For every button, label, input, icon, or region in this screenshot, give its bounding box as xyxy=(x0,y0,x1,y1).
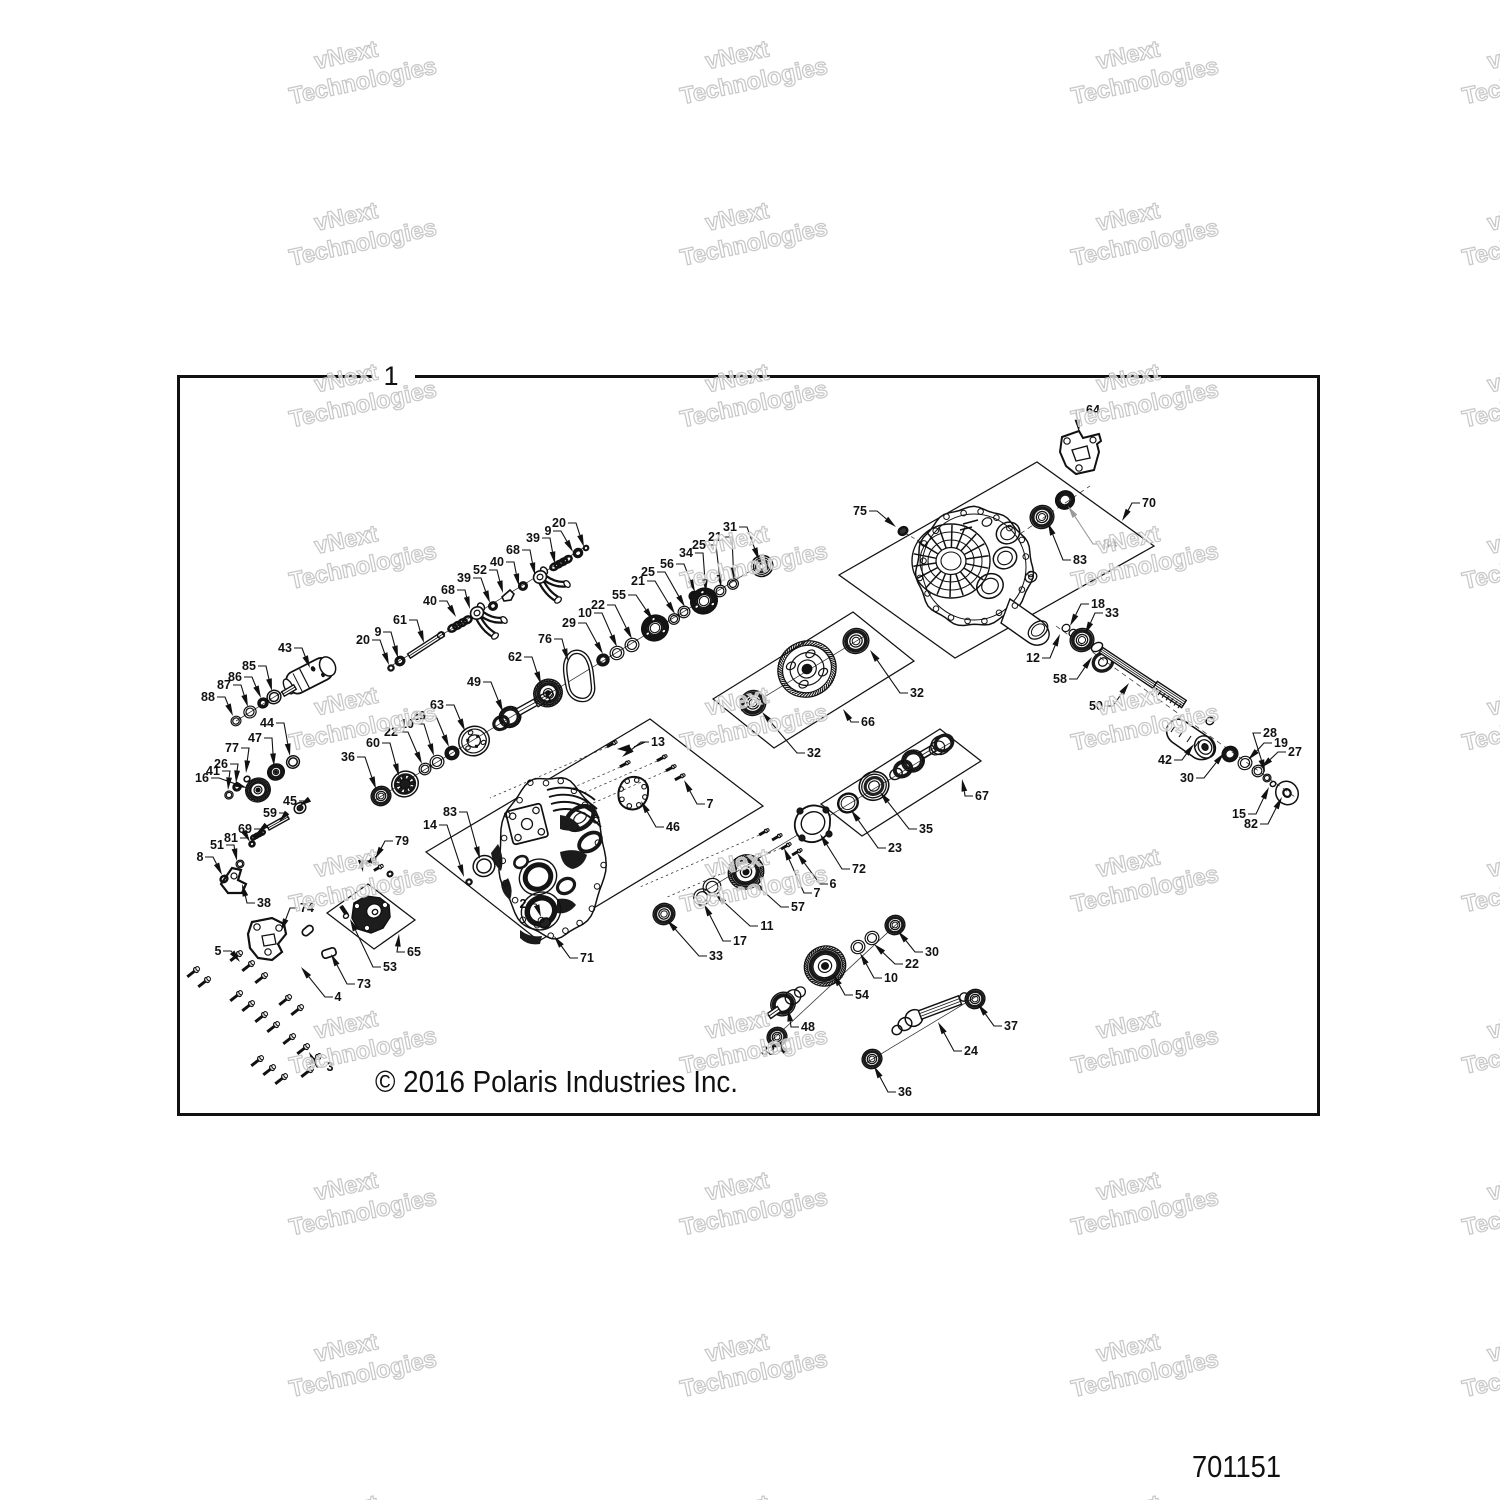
svg-text:71: 71 xyxy=(580,951,594,965)
svg-text:59: 59 xyxy=(263,806,277,820)
svg-text:33: 33 xyxy=(1105,606,1119,620)
svg-text:30: 30 xyxy=(925,945,939,959)
svg-text:68: 68 xyxy=(441,583,455,597)
svg-text:13: 13 xyxy=(651,735,665,749)
svg-text:61: 61 xyxy=(393,613,407,627)
svg-text:16: 16 xyxy=(195,771,209,785)
svg-text:6: 6 xyxy=(830,877,837,891)
svg-text:37: 37 xyxy=(1004,1019,1018,1033)
svg-text:21: 21 xyxy=(631,574,645,588)
svg-text:83: 83 xyxy=(443,805,457,819)
svg-text:76: 76 xyxy=(538,632,552,646)
svg-text:43: 43 xyxy=(278,641,292,655)
svg-text:9: 9 xyxy=(545,524,552,538)
svg-text:9: 9 xyxy=(375,625,382,639)
svg-text:68: 68 xyxy=(506,543,520,557)
svg-text:38: 38 xyxy=(257,896,271,910)
svg-text:20: 20 xyxy=(552,516,566,530)
svg-text:11: 11 xyxy=(760,919,773,933)
svg-text:53: 53 xyxy=(383,960,397,974)
svg-text:10: 10 xyxy=(884,971,898,985)
svg-text:22: 22 xyxy=(905,957,919,971)
svg-text:27: 27 xyxy=(1288,745,1302,759)
svg-text:45: 45 xyxy=(283,794,297,808)
svg-text:40: 40 xyxy=(490,555,504,569)
svg-text:10: 10 xyxy=(578,606,592,620)
svg-text:79: 79 xyxy=(395,834,409,848)
svg-text:8: 8 xyxy=(197,850,204,864)
svg-text:62: 62 xyxy=(508,650,522,664)
svg-text:44: 44 xyxy=(260,716,274,730)
svg-text:12: 12 xyxy=(1026,651,1040,665)
svg-text:85: 85 xyxy=(242,659,256,673)
svg-text:19: 19 xyxy=(1274,736,1288,750)
svg-text:54: 54 xyxy=(855,988,869,1002)
svg-text:65: 65 xyxy=(407,945,421,959)
svg-text:24: 24 xyxy=(964,1044,978,1058)
svg-text:36: 36 xyxy=(341,750,355,764)
svg-text:82: 82 xyxy=(1244,817,1258,831)
svg-text:73: 73 xyxy=(357,977,371,991)
svg-text:4: 4 xyxy=(335,990,342,1004)
svg-text:55: 55 xyxy=(612,588,626,602)
svg-text:47: 47 xyxy=(248,731,262,745)
svg-text:23: 23 xyxy=(888,841,902,855)
svg-text:52: 52 xyxy=(473,563,487,577)
svg-text:49: 49 xyxy=(467,675,481,689)
svg-text:81: 81 xyxy=(224,831,238,845)
svg-text:35: 35 xyxy=(919,822,933,836)
svg-text:46: 46 xyxy=(666,820,680,834)
svg-text:36: 36 xyxy=(898,1085,912,1099)
svg-text:18: 18 xyxy=(1091,597,1105,611)
svg-text:72: 72 xyxy=(852,862,866,876)
svg-text:77: 77 xyxy=(225,741,239,755)
svg-text:67: 67 xyxy=(975,789,989,803)
svg-text:2: 2 xyxy=(520,897,527,911)
svg-text:701151: 701151 xyxy=(1192,1450,1281,1484)
svg-text:56: 56 xyxy=(660,557,674,571)
svg-text:29: 29 xyxy=(562,616,576,630)
svg-text:40: 40 xyxy=(423,594,437,608)
svg-text:20: 20 xyxy=(356,633,370,647)
svg-text:5: 5 xyxy=(215,944,222,958)
svg-text:32: 32 xyxy=(910,686,924,700)
svg-text:88: 88 xyxy=(201,690,215,704)
svg-text:57: 57 xyxy=(791,900,805,914)
svg-text:66: 66 xyxy=(861,715,875,729)
svg-text:7: 7 xyxy=(707,797,714,811)
svg-text:17: 17 xyxy=(733,934,747,948)
svg-text:70: 70 xyxy=(1142,496,1156,510)
svg-text:51: 51 xyxy=(210,838,224,852)
svg-text:75: 75 xyxy=(853,504,867,518)
svg-text:58: 58 xyxy=(1053,672,1067,686)
svg-text:34: 34 xyxy=(679,546,693,560)
svg-text:33: 33 xyxy=(709,949,723,963)
svg-text:30: 30 xyxy=(1180,771,1194,785)
svg-text:42: 42 xyxy=(1158,753,1172,767)
svg-text:87: 87 xyxy=(217,678,231,692)
svg-text:39: 39 xyxy=(457,571,471,585)
svg-text:39: 39 xyxy=(526,531,540,545)
svg-text:32: 32 xyxy=(807,746,821,760)
svg-text:22: 22 xyxy=(591,598,605,612)
svg-text:14: 14 xyxy=(423,818,437,832)
